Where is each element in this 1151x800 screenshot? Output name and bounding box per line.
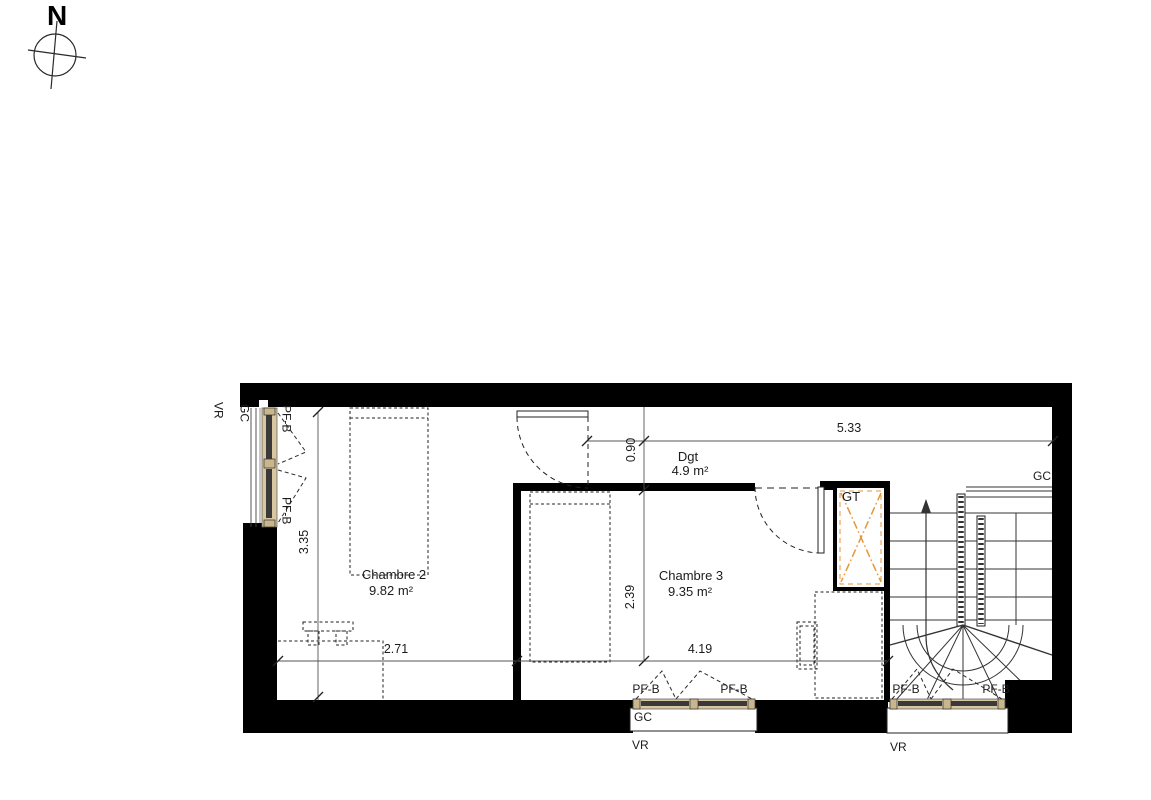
window-label-left-top: PF-B (280, 405, 293, 432)
shutter-label-left: VR (212, 402, 225, 419)
floor-plan: N VR GC PF-B PF-B Chambre 2 9.82 m² Cham… (0, 0, 1151, 800)
staircase (890, 487, 1052, 704)
window-label-a2: PF-B (720, 683, 747, 696)
walls (240, 383, 1072, 733)
shutter-label-window-b: VR (890, 741, 907, 754)
room-label-gt: GT (842, 490, 860, 504)
room-area-chambre3: 9.35 m² (668, 585, 712, 599)
dimension-chambre2-width: 2.71 (384, 643, 408, 656)
dimension-chambre3-height: 2.39 (623, 575, 637, 619)
window-label-b2: PF-B (982, 683, 1009, 696)
dimension-ticks (273, 407, 1058, 702)
door-chambre2 (517, 411, 588, 488)
window-label-left-bottom: PF-B (280, 497, 293, 524)
dimension-chambre3-width: 4.19 (688, 643, 712, 656)
room-area-chambre2: 9.82 m² (369, 584, 413, 598)
dimension-door-width: 0.90 (624, 428, 638, 472)
shutter-label-window-a: VR (632, 739, 649, 752)
guardrail-label-left: GC (238, 404, 251, 422)
room-area-dgt: 4.9 m² (672, 464, 709, 478)
guardrail-label-stairs: GC (1033, 470, 1051, 483)
wall-bottom-right (1005, 680, 1052, 733)
window-label-b1: PF-B (892, 683, 919, 696)
room-label-dgt: Dgt (678, 450, 698, 464)
window-label-a1: PF-B (632, 683, 659, 696)
guardrail-label-window-a: GC (634, 711, 652, 724)
door-chambre3 (755, 487, 824, 553)
room-label-chambre3: Chambre 3 (659, 569, 723, 583)
dimension-left-height: 3.35 (297, 520, 311, 564)
floor-plan-drawing (0, 0, 1151, 800)
dimension-top-width: 5.33 (837, 422, 861, 435)
north-label: N (47, 0, 67, 32)
left-window (251, 408, 306, 527)
room-label-chambre2: Chambre 2 (362, 568, 426, 582)
furniture (278, 408, 882, 700)
